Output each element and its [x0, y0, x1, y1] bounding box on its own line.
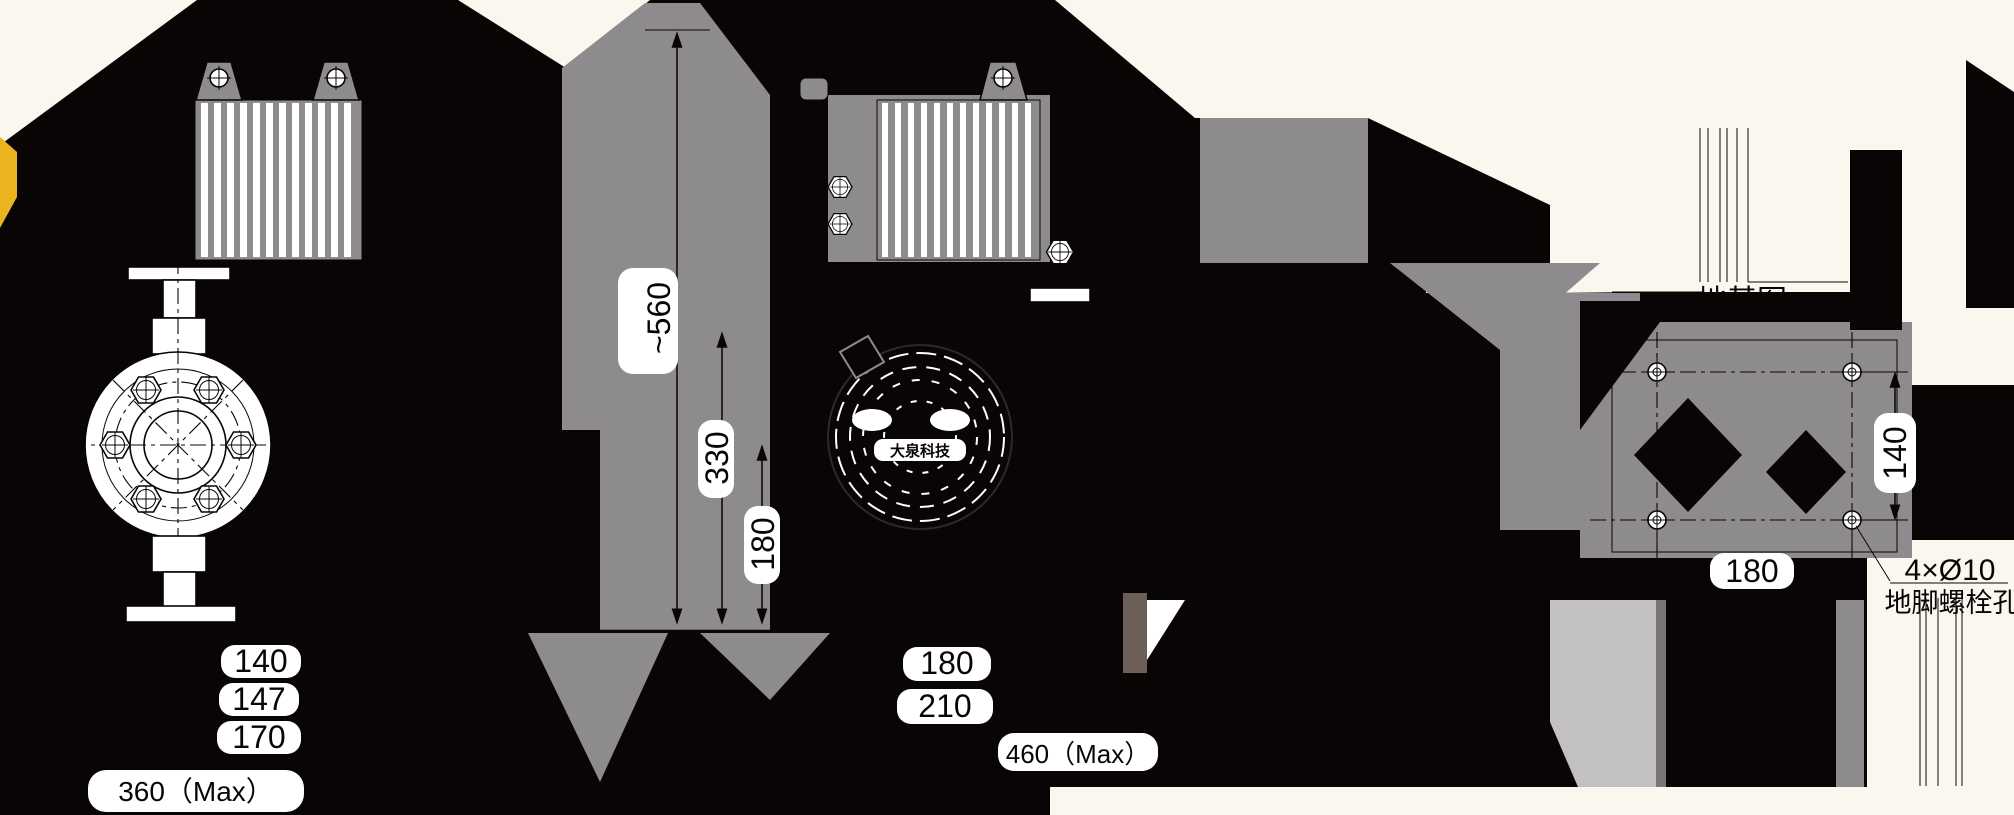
mount-bar [128, 267, 230, 280]
pipe-fitting [1030, 288, 1090, 302]
pipe-nut-icon [1047, 240, 1074, 263]
foundation-title: 地基图 [1697, 285, 1787, 318]
cream-bottom-strip [1050, 787, 1870, 815]
dim-side-overall-height: ~560 [641, 282, 677, 354]
dim-side-low-height: 180 [745, 517, 781, 570]
pump-technical-drawing: 大泉科技 [0, 0, 2014, 815]
dim-side-depth-inner: 180 [920, 645, 973, 681]
black-rect-bottom-right [1666, 600, 1836, 787]
flange-nut-icon [194, 377, 224, 403]
flange-nut-icon [131, 486, 161, 512]
brand-label: 大泉科技 [890, 442, 951, 460]
dim-front-overall: 360（Max） [118, 776, 274, 807]
dim-side-mid-height: 330 [699, 431, 735, 484]
dim-front-bolt-spacing: 147 [232, 681, 285, 717]
dim-front-base: 170 [232, 719, 285, 755]
bolt-note-label: 地脚螺栓孔 [1885, 588, 2014, 618]
side-nut-icon [828, 214, 852, 235]
dim-side-depth-base: 210 [918, 688, 971, 724]
side-nut-icon [828, 177, 852, 198]
dim-foundation-width: 180 [1725, 553, 1778, 589]
base-plate [126, 606, 236, 622]
flange-nut-icon [131, 377, 161, 403]
flange-nut-icon [226, 432, 256, 458]
flange-nut-icon [194, 486, 224, 512]
flange-nut-icon [100, 432, 130, 458]
dim-side-overall-depth: 460（Max） [1006, 739, 1151, 769]
dim-foundation-height: 140 [1877, 426, 1913, 479]
dim-front-flange: 140 [234, 643, 287, 679]
gray-rect-center [1200, 118, 1368, 263]
bolt-note-spec: 4×Ø10 [1905, 554, 1996, 587]
